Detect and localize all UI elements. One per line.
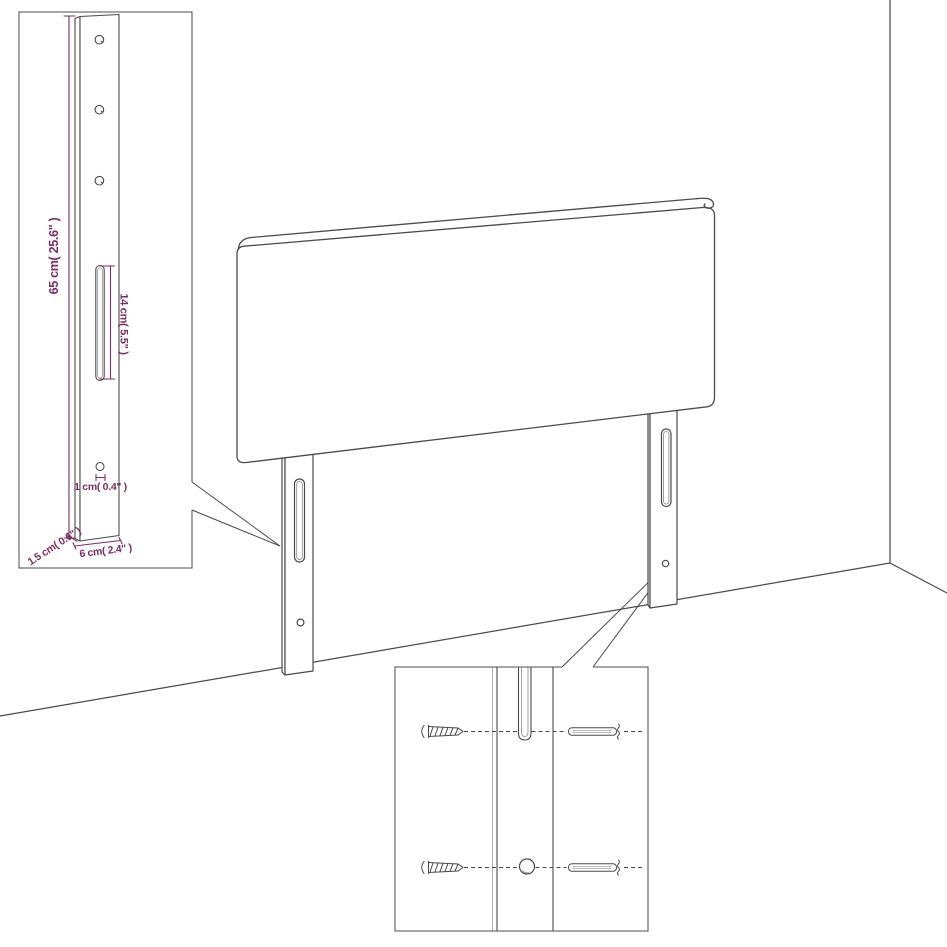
- diagram-svg: 65 cm( 25.6" ) 14 cm( 5.5" ) 1 cm( 0.4" …: [0, 0, 947, 947]
- left-leg: [282, 448, 313, 675]
- post-hole-2: [95, 105, 104, 114]
- post-hole-3: [95, 176, 104, 185]
- panel-front-face: [237, 207, 715, 462]
- dim-slot-label: 14 cm( 5.5" ): [118, 293, 130, 355]
- leg-detail-drawing: [75, 15, 119, 542]
- dim-hole-label: 1 cm( 0.4" ): [74, 481, 127, 493]
- panel-top-edge-right-curl: [697, 198, 714, 208]
- right-leg-slot-inner: [664, 432, 669, 505]
- post-small-hole: [96, 463, 104, 471]
- left-leg-slot-inner: [297, 482, 303, 560]
- assembly-diagram-canvas: 65 cm( 25.6" ) 14 cm( 5.5" ) 1 cm( 0.4" …: [0, 0, 947, 947]
- floor-line-right: [890, 563, 947, 593]
- left-leg-hole: [297, 619, 304, 626]
- post-side-face: [75, 17, 80, 542]
- headboard-panel: [237, 198, 715, 462]
- post-hole-1: [95, 35, 104, 44]
- dim-height-label: 65 cm( 25.6" ): [47, 217, 61, 294]
- leg-detail-callout-lines: [192, 482, 280, 546]
- right-leg: [648, 406, 677, 608]
- right-leg-hole: [662, 560, 668, 566]
- mounting-detail-inset: [395, 667, 648, 931]
- post-slot: [96, 266, 104, 381]
